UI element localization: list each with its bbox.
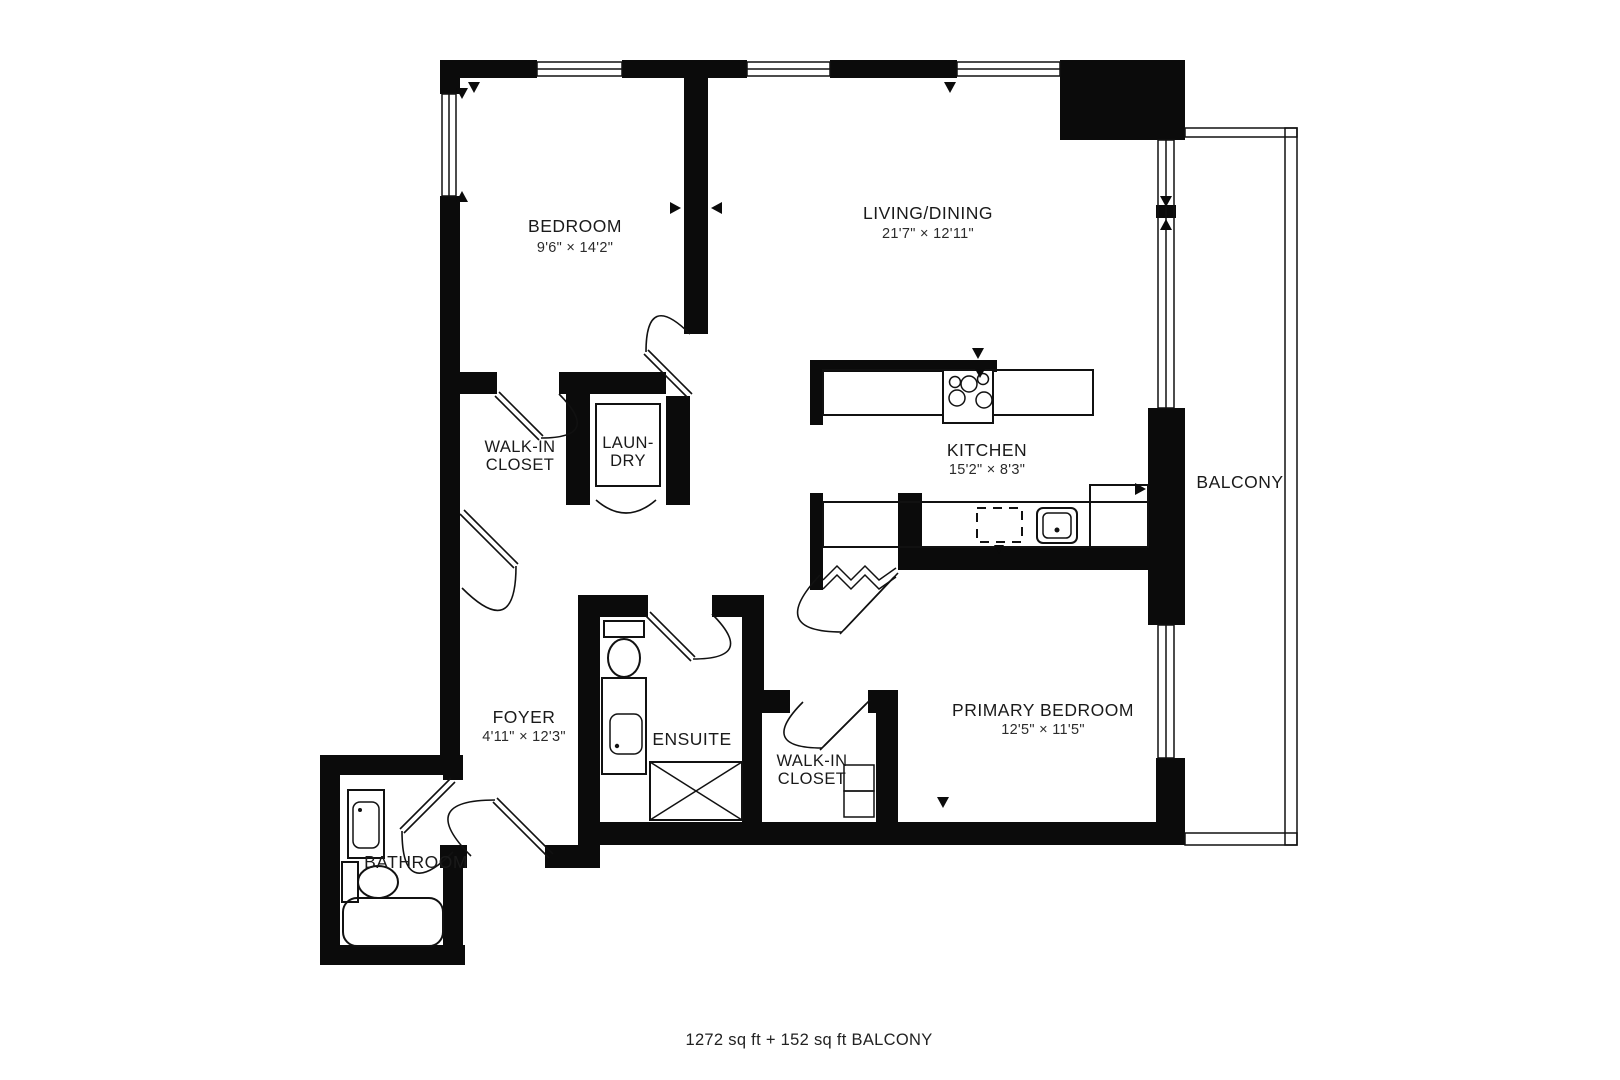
door-arc [460,510,518,610]
room-labels: BEDROOM 9'6" × 14'2" LIVING/DINING 21'7"… [364,203,1283,1049]
window [442,94,456,196]
room-dims-primary-bedroom: 12'5" × 11'5" [1001,722,1085,738]
closet-shelves [844,765,874,817]
kitchen-sink-icon [1037,508,1077,543]
bathroom-vanity-sink-icon [348,790,384,858]
bathtub-icon [343,898,443,946]
shower-icon [650,762,742,820]
room-label-kitchen: KITCHEN [947,440,1027,460]
area-summary: 1272 sq ft + 152 sq ft BALCONY [685,1031,932,1049]
door-arc [495,392,577,440]
room-label-ensuite: ENSUITE [652,729,731,749]
room-label-balcony: BALCONY [1196,472,1283,492]
room-label-laundry-line2: DRY [610,452,646,470]
room-label-walk-in-closet-2-line1: WALK-IN [777,752,848,770]
room-label-bedroom: BEDROOM [528,216,622,236]
door-arc [798,573,898,634]
window [957,62,1060,76]
room-dims-foyer: 4'11" × 12'3" [482,729,566,745]
floor-plan-drawing: BEDROOM 9'6" × 14'2" LIVING/DINING 21'7"… [0,0,1620,1080]
window [1158,140,1174,408]
vanity-sink-icon [602,678,646,774]
room-label-bathroom: BATHROOM [364,852,468,872]
room-label-primary-bedroom: PRIMARY BEDROOM [952,700,1134,720]
kitchen-counter-corner [1090,485,1148,547]
room-dims-kitchen: 15'2" × 8'3" [949,462,1025,478]
room-label-living-dining: LIVING/DINING [863,203,993,223]
door-arc [784,700,870,750]
window [747,62,830,76]
window [537,62,622,76]
stove-icon [943,370,993,423]
passage-break-line [823,566,896,589]
room-label-walk-in-closet-1-line1: WALK-IN [485,438,556,456]
window [1158,625,1174,758]
ensuite-fixtures [602,621,742,820]
door-arc [646,612,731,661]
room-label-walk-in-closet-1-line2: CLOSET [486,456,554,474]
toilet-icon [604,621,644,677]
door-arc [596,500,656,513]
room-dims-bedroom: 9'6" × 14'2" [537,240,613,256]
floor-plan-page: BEDROOM 9'6" × 14'2" LIVING/DINING 21'7"… [0,0,1620,1080]
room-label-laundry-line1: LAUN- [602,434,654,452]
room-label-foyer: FOYER [493,707,556,727]
windows [442,62,1174,758]
entry-door-arc [448,798,553,858]
dishwasher-icon [977,508,1022,542]
room-label-walk-in-closet-2-line2: CLOSET [778,770,846,788]
top-right-corner-block [1060,60,1185,140]
room-dims-living-dining: 21'7" × 12'11" [882,226,974,242]
